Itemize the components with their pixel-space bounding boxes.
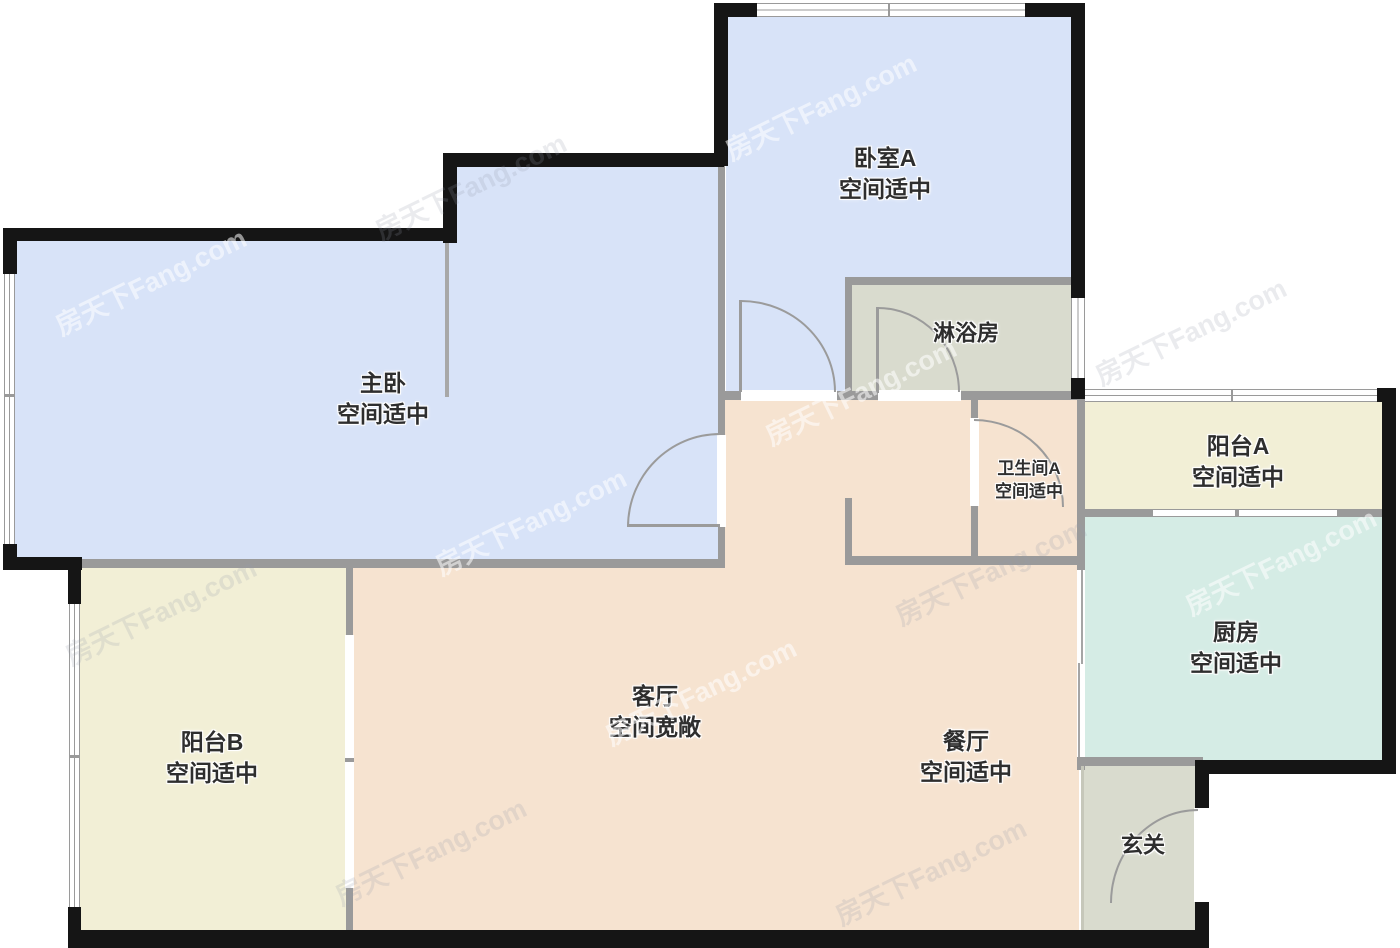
window-bedroom-a-top-tick <box>888 3 890 17</box>
room-label-living: 客厅 空间宽敞 <box>609 681 701 743</box>
room-size: 空间适中 <box>839 174 931 205</box>
window-master-left <box>4 274 15 544</box>
wall-master-bottom <box>75 559 725 568</box>
room-name: 淋浴房 <box>933 318 999 349</box>
kitchen-sliding-panel-1 <box>1081 570 1083 664</box>
wall-shower-left <box>845 277 852 399</box>
room-size: 空间适中 <box>1192 462 1284 493</box>
room-size: 空间适中 <box>166 758 258 789</box>
room-label-balcony-a: 阳台A 空间适中 <box>1192 431 1284 493</box>
outer-wall-bedroom-a-left <box>714 3 728 166</box>
room-name: 玄关 <box>1121 830 1165 861</box>
room-name: 卫生间A <box>995 457 1063 480</box>
room-size: 空间适中 <box>337 399 429 430</box>
room-name: 主卧 <box>337 368 429 399</box>
room-label-kitchen: 厨房 空间适中 <box>1190 617 1282 679</box>
wall-corridor-stub <box>845 498 852 560</box>
room-label-dining: 餐厅 空间适中 <box>920 726 1012 788</box>
outer-wall-master-top <box>3 228 456 241</box>
window-bedroom-a-right <box>1071 298 1085 378</box>
room-label-shower: 淋浴房 <box>933 318 999 349</box>
room-name: 卧室A <box>839 143 931 174</box>
room-size: 空间适中 <box>1190 648 1282 679</box>
outer-wall-master-left-upper <box>3 228 17 274</box>
room-label-master: 主卧 空间适中 <box>337 368 429 430</box>
room-label-bedroom-a: 卧室A 空间适中 <box>839 143 931 205</box>
room-size: 空间适中 <box>920 757 1012 788</box>
window-balcony-b-left <box>69 604 80 914</box>
room-size: 空间适中 <box>995 480 1063 503</box>
outer-wall-kitchen-bottom <box>1195 760 1396 774</box>
room-name: 阳台A <box>1192 431 1284 462</box>
watermark: 房天下Fang.com <box>1088 267 1293 393</box>
wall-balcony-a-bottom <box>1084 509 1386 517</box>
outer-wall-master-step-top <box>443 153 724 167</box>
room-name: 厨房 <box>1190 617 1282 648</box>
window-balcony-a-bottom-1 <box>1153 510 1235 516</box>
room-name: 餐厅 <box>920 726 1012 757</box>
room-label-foyer: 玄关 <box>1121 830 1165 861</box>
wall-kitchen-bottom <box>1081 757 1203 766</box>
room-master-bedroom-area-upper <box>456 166 718 244</box>
kitchen-sliding-panel-2 <box>1078 663 1080 757</box>
wall-shower-top <box>845 277 1083 285</box>
room-label-bathroom-a: 卫生间A 空间适中 <box>995 457 1063 503</box>
wall-bathroom-a-bottom <box>845 556 1083 565</box>
window-balcony-b-left-tick <box>69 755 80 758</box>
outer-wall-bottom <box>68 930 1209 948</box>
floorplan-canvas: 卧室A 空间适中 主卧 空间适中 淋浴房 卫生间A 空间适中 阳台A 空间适中 … <box>0 0 1400 948</box>
outer-wall-balcony-b-left-upper <box>68 557 81 604</box>
room-name: 阳台B <box>166 727 258 758</box>
wall-foyer-left <box>1081 766 1084 934</box>
room-label-balcony-b: 阳台B 空间适中 <box>166 727 258 789</box>
window-balcony-a-bottom-2 <box>1239 510 1337 516</box>
wall-master-partial <box>445 240 449 397</box>
room-size: 空间宽敞 <box>609 712 701 743</box>
balcony-b-door-tick <box>345 758 354 762</box>
window-balcony-a-top-tick <box>1231 389 1233 402</box>
room-name: 客厅 <box>609 681 701 712</box>
window-bedroom-a-top <box>757 3 1025 17</box>
outer-wall-right <box>1382 395 1396 774</box>
window-master-left-tick <box>4 394 15 397</box>
